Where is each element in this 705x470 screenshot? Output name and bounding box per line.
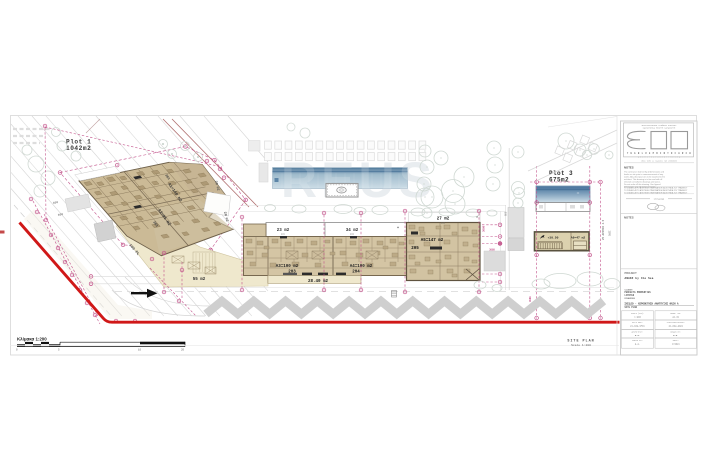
svg-text:SITE PLAN: SITE PLAN <box>625 306 638 309</box>
svg-text:A.A.: A.A. <box>635 343 640 346</box>
svg-text:204: 204 <box>352 271 360 275</box>
svg-text:21-034-2021: 21-034-2021 <box>669 325 684 328</box>
svg-text:DRAWING: DRAWING <box>625 297 636 300</box>
svg-text:28.40 m2: 28.40 m2 <box>308 280 329 284</box>
svg-text:ΚΑΙΝΟΤΟΜΙΑ ΜΕΛΕΤΗ ΚΑΤΑΣΚΕΥΗ: ΚΑΙΝΟΤΟΜΙΑ ΜΕΛΕΤΗ ΚΑΤΑΣΚΕΥΗ <box>643 126 676 129</box>
svg-text:A5=147 m2: A5=147 m2 <box>421 239 444 243</box>
svg-text:A6=47 m2: A6=47 m2 <box>571 236 586 239</box>
svg-text:205: 205 <box>411 247 419 251</box>
svg-text:55 m2: 55 m2 <box>193 278 206 282</box>
svg-text:REUS: REUS <box>281 152 436 208</box>
svg-text:Κλίμακα 1:200: Κλίμακα 1:200 <box>17 337 47 342</box>
svg-text:Scale 1:200: Scale 1:200 <box>571 343 591 347</box>
svg-text:A3=100 m2: A3=100 m2 <box>276 265 299 269</box>
svg-text:1/2021: 1/2021 <box>672 343 681 346</box>
svg-text:οδος ταδε 12 Λεμεσος τηλ 250: οδος ταδε 12 Λεμεσος τηλ 25000000 <box>641 160 677 162</box>
svg-text:206: 206 <box>441 221 446 224</box>
svg-text:21-034-SP01: 21-034-SP01 <box>630 325 645 328</box>
svg-text:G05: G05 <box>505 211 508 216</box>
svg-text:ΟΔΟΣ: ΟΔΟΣ <box>609 230 612 236</box>
svg-text:υπογραφη: υπογραφη <box>654 198 665 201</box>
svg-text:A1.01: A1.01 <box>673 315 680 318</box>
svg-text:SITE PLAN: SITE PLAN <box>567 340 594 344</box>
svg-text:+30.50: +30.50 <box>548 236 559 239</box>
svg-text:LIMITED: LIMITED <box>625 294 635 297</box>
svg-text:1042m2: 1042m2 <box>66 145 91 152</box>
svg-text:3080: 3080 <box>483 225 486 232</box>
svg-text:A.A.: A.A. <box>635 334 640 337</box>
svg-text:ΤΟ ΣΧΕΔΙΟ ΑΥΤΟ ΑΠΟΤΕΛΕΙ ΠΝΕΥΜΑ: ΤΟ ΣΧΕΔΙΟ ΑΥΤΟ ΑΠΟΤΕΛΕΙ ΠΝΕΥΜΑΤΙΚΗ ΙΔΙΟΚ… <box>624 192 688 195</box>
svg-text:20: 20 <box>181 349 185 352</box>
svg-text:202: 202 <box>350 233 355 236</box>
svg-text:10: 10 <box>138 349 142 352</box>
svg-text:A R C H I T E C T U R E B Y: A R C H I T E C T U R E B Y T H E S E A <box>638 156 681 159</box>
svg-text:PROJECT: PROJECT <box>625 271 638 275</box>
svg-text:203: 203 <box>288 271 296 275</box>
svg-text:NOTES: NOTES <box>624 216 634 220</box>
svg-text:ANAKI by the Sea: ANAKI by the Sea <box>625 276 654 280</box>
svg-text:3080: 3080 <box>529 296 532 302</box>
svg-text:M.A.: M.A. <box>673 334 678 337</box>
svg-text:ΣΧΕΔΙΟ - ΧΩΡΟΘΕΤΗΣΗ ΑΝΑΠΤΥΞΗΣ: ΣΧΕΔΙΟ - ΧΩΡΟΘΕΤΗΣΗ ΑΝΑΠΤΥΞΗΣ ΦΑΣΗ Α <box>625 302 680 305</box>
svg-text:25 ΔΡΟΜΟΣ 4.5: 25 ΔΡΟΜΟΣ 4.5 <box>602 219 605 240</box>
svg-text:1:200: 1:200 <box>634 315 641 318</box>
svg-text:T H E B L U E P R I N T O F: T H E B L U E P R I N T O F A R C H <box>627 152 691 155</box>
svg-text:NOTES: NOTES <box>624 165 634 169</box>
svg-text:201: 201 <box>281 233 286 236</box>
